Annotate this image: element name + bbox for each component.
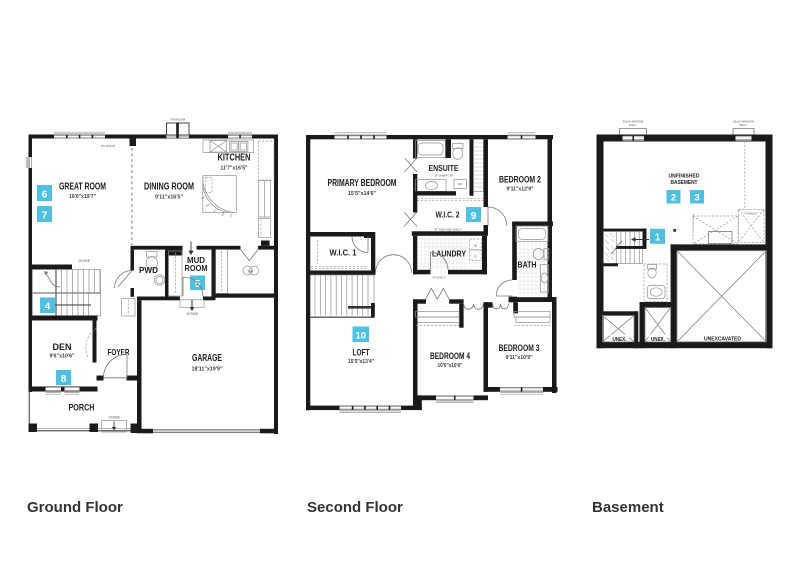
svg-text:9'11"x10'9": 9'11"x10'9" — [506, 355, 534, 361]
svg-text:PORCH: PORCH — [69, 403, 95, 413]
svg-text:PRIMARY BEDROOM: PRIMARY BEDROOM — [328, 178, 397, 189]
svg-text:ROOM: ROOM — [185, 264, 208, 273]
svg-text:10: 10 — [356, 331, 367, 342]
svg-text:UNEX.: UNEX. — [651, 337, 666, 343]
svg-text:SF ROD AND SHELF: SF ROD AND SHELF — [434, 227, 462, 231]
svg-text:10'6"x10'0": 10'6"x10'0" — [438, 363, 463, 369]
svg-text:18'11"x19'9": 18'11"x19'9" — [192, 366, 224, 372]
svg-text:15'5"x13'4": 15'5"x13'4" — [348, 359, 375, 365]
svg-text:UNEXCAVATED: UNEXCAVATED — [704, 336, 741, 342]
svg-text:UNFINISHED: UNFINISHED — [669, 174, 700, 180]
svg-text:9'11"x16'5": 9'11"x16'5" — [155, 195, 184, 201]
svg-text:16 RISE: 16 RISE — [78, 259, 90, 263]
svg-text:WH: WH — [248, 269, 254, 273]
svg-text:9'11"x12'9": 9'11"x12'9" — [507, 187, 535, 193]
svg-text:3F SHWR DR: 3F SHWR DR — [434, 174, 454, 178]
svg-text:BEDROOM 3: BEDROOM 3 — [499, 343, 540, 354]
svg-text:8'0 DOOR: 8'0 DOOR — [101, 144, 116, 148]
svg-text:LOFT: LOFT — [353, 347, 370, 357]
svg-text:BEDROOM 2: BEDROOM 2 — [499, 174, 541, 185]
svg-text:7: 7 — [42, 210, 48, 221]
svg-text:16'0"x19'7": 16'0"x19'7" — [69, 194, 97, 200]
svg-text:9: 9 — [471, 211, 477, 222]
svg-text:TRANSOM: TRANSOM — [170, 118, 186, 122]
svg-text:GARAGE: GARAGE — [192, 353, 222, 364]
svg-text:6: 6 — [42, 189, 48, 200]
svg-text:W.I.C. 1: W.I.C. 1 — [330, 248, 358, 257]
svg-text:WC: WC — [458, 182, 463, 186]
svg-text:GREAT ROOM: GREAT ROOM — [59, 182, 106, 193]
svg-text:WELL: WELL — [740, 123, 748, 127]
svg-text:2: 2 — [671, 193, 676, 204]
svg-text:KITCHEN: KITCHEN — [218, 153, 251, 164]
svg-text:15'5"x14'6": 15'5"x14'6" — [348, 191, 377, 197]
svg-text:DEN: DEN — [53, 342, 72, 352]
svg-text:4: 4 — [45, 302, 51, 313]
svg-text:BATH: BATH — [518, 259, 537, 269]
svg-text:BEDROOM 4: BEDROOM 4 — [430, 351, 470, 362]
svg-text:9'6"x10'6": 9'6"x10'6" — [50, 354, 76, 360]
svg-text:W: W — [474, 244, 477, 248]
svg-text:PWD: PWD — [139, 265, 158, 275]
svg-text:Ground Floor: Ground Floor — [27, 499, 123, 516]
svg-text:UNEX.: UNEX. — [613, 337, 628, 343]
svg-text:ENSUITE: ENSUITE — [429, 163, 459, 173]
svg-text:W.I.C. 2: W.I.C. 2 — [436, 211, 460, 220]
svg-text:5: 5 — [195, 279, 201, 290]
svg-text:15 RISE: 15 RISE — [186, 312, 198, 316]
svg-text:DINING ROOM: DINING ROOM — [144, 182, 194, 193]
svg-text:BASEMENT: BASEMENT — [671, 180, 699, 186]
svg-text:WELL: WELL — [629, 123, 637, 127]
svg-text:3F SHELF: 3F SHELF — [432, 275, 446, 279]
svg-text:FURNACE: FURNACE — [745, 212, 758, 216]
svg-text:Basement: Basement — [592, 499, 664, 516]
svg-text:1: 1 — [655, 233, 661, 244]
svg-text:3: 3 — [694, 193, 699, 204]
svg-text:Second Floor: Second Floor — [307, 499, 403, 516]
svg-text:15 RISE: 15 RISE — [108, 416, 120, 420]
svg-text:11'7"x16'5": 11'7"x16'5" — [221, 165, 249, 171]
svg-text:8: 8 — [61, 374, 67, 385]
